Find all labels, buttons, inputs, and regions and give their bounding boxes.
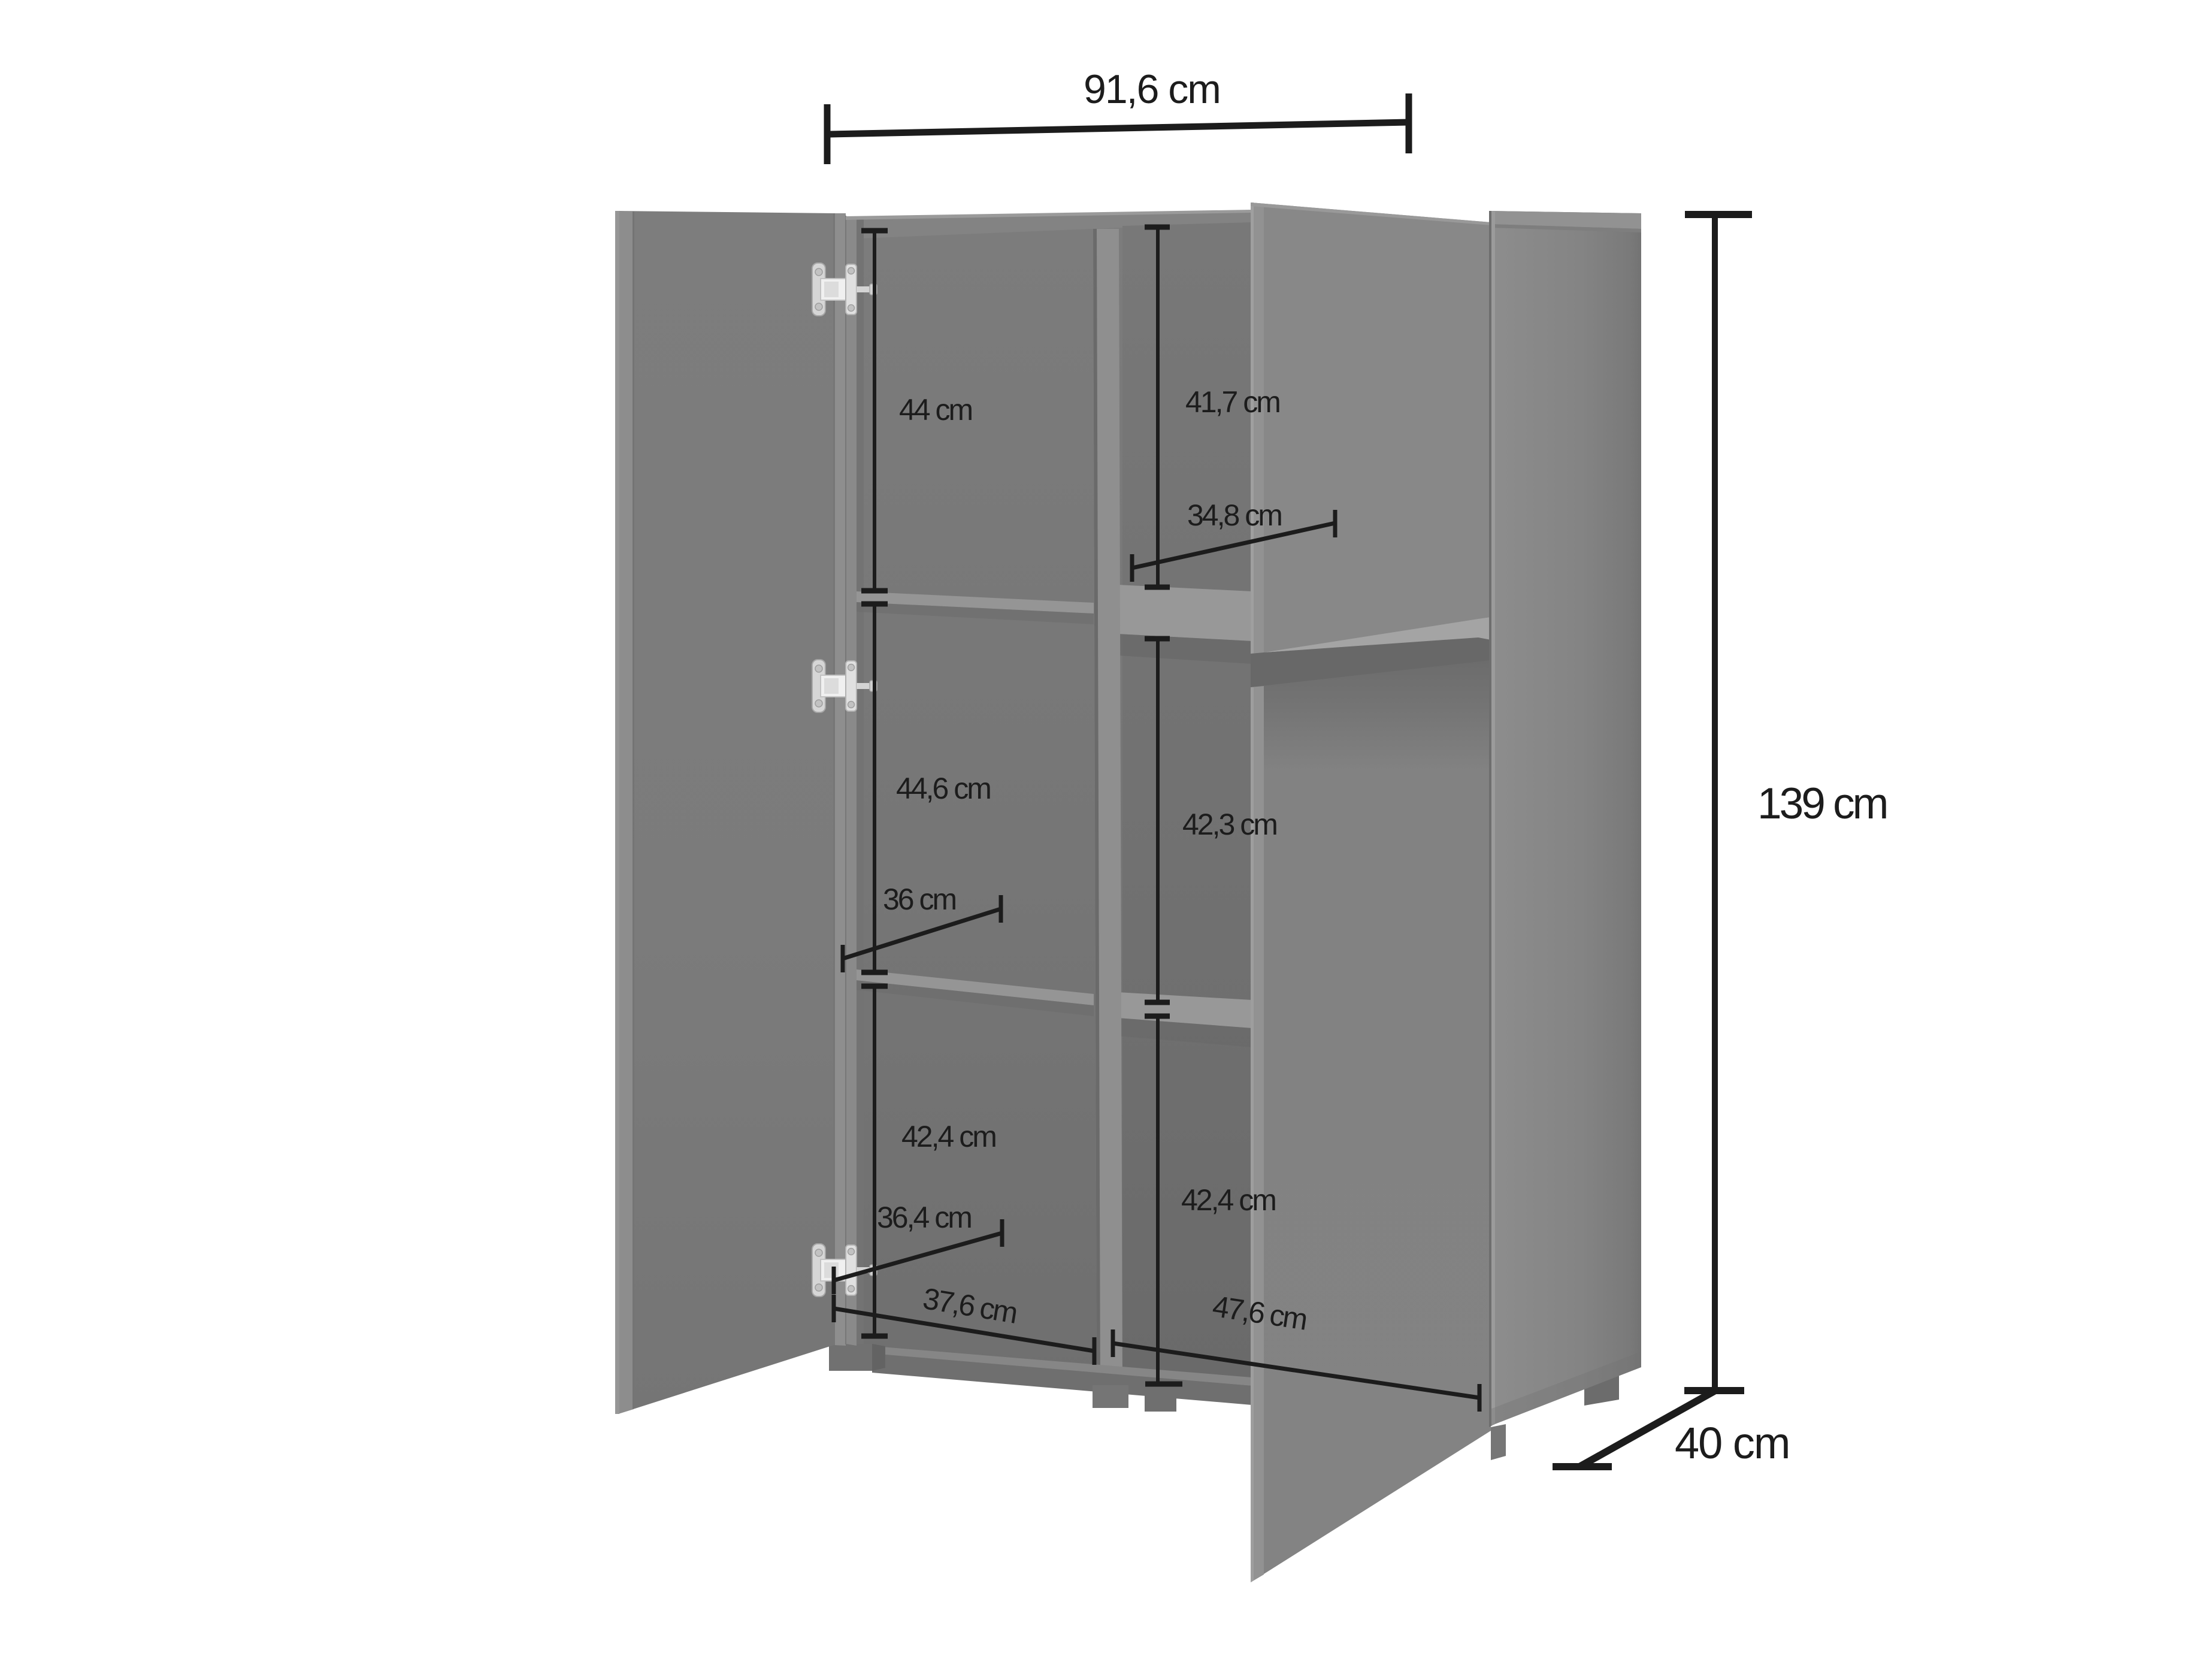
svg-text:36,4 cm: 36,4 cm: [877, 1201, 971, 1234]
svg-text:42,4 cm: 42,4 cm: [1181, 1183, 1275, 1217]
svg-text:42,3 cm: 42,3 cm: [1182, 808, 1276, 841]
svg-text:40 cm: 40 cm: [1675, 1418, 1790, 1468]
svg-text:34,8 cm: 34,8 cm: [1187, 498, 1281, 532]
svg-text:36 cm: 36 cm: [883, 883, 956, 916]
svg-text:139 cm: 139 cm: [1757, 779, 1886, 828]
svg-text:44,6 cm: 44,6 cm: [896, 772, 990, 805]
svg-text:91,6 cm: 91,6 cm: [1084, 67, 1220, 112]
svg-text:44 cm: 44 cm: [899, 393, 972, 427]
svg-text:42,4 cm: 42,4 cm: [901, 1120, 995, 1153]
svg-text:41,7 cm: 41,7 cm: [1185, 385, 1279, 419]
